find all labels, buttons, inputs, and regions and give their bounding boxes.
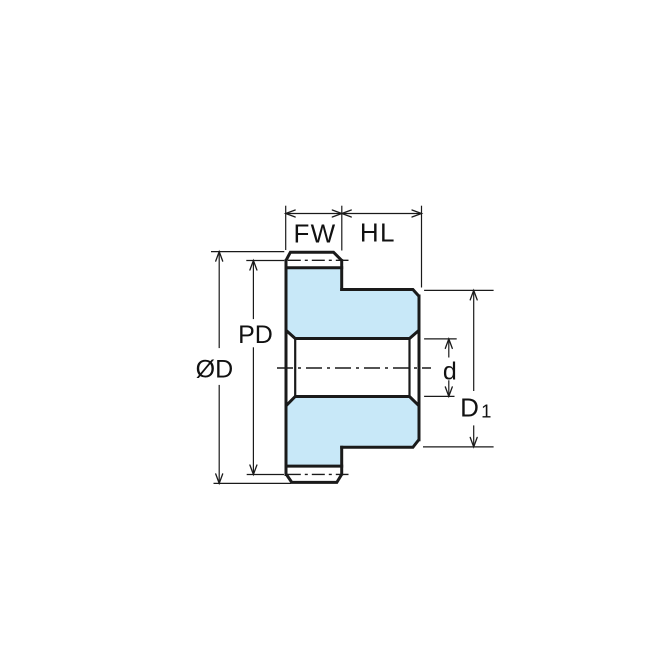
svg-text:HL: HL [360,217,396,247]
svg-text:ØD: ØD [196,355,234,383]
svg-text:PD: PD [238,321,273,349]
svg-text:1: 1 [481,401,491,422]
svg-text:d: d [443,358,457,386]
svg-text:FW: FW [293,218,336,248]
svg-text:D: D [460,393,479,423]
